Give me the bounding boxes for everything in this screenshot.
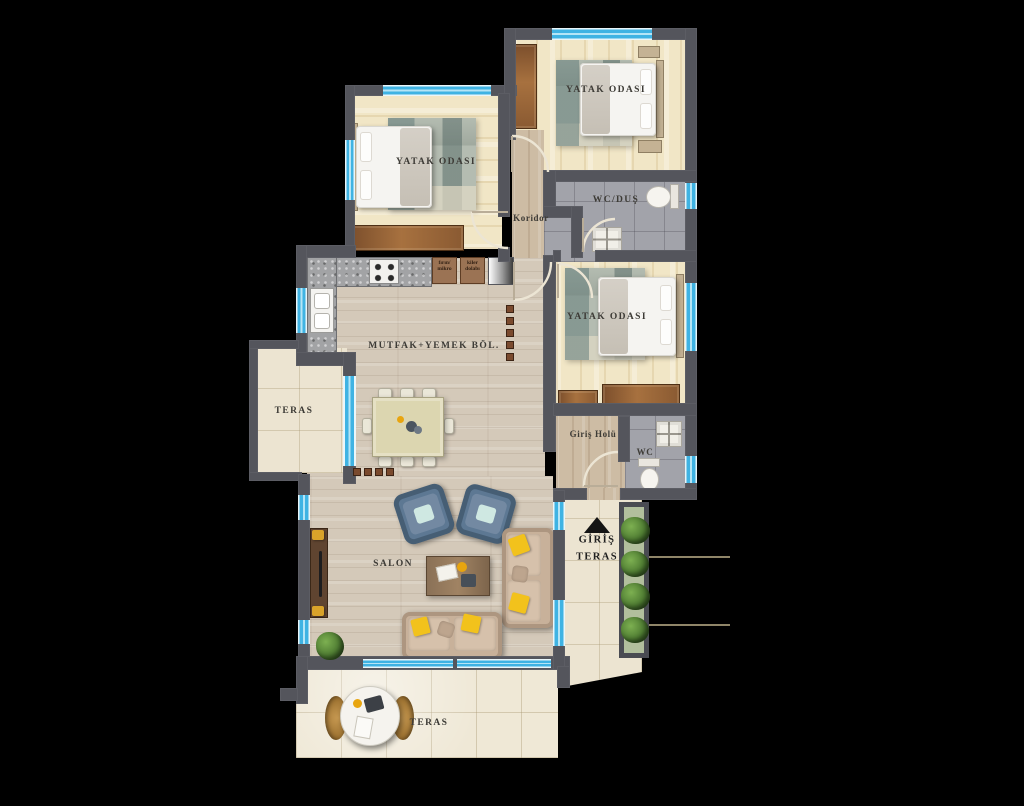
bed (580, 63, 656, 136)
bench (638, 46, 660, 58)
wall (557, 666, 570, 688)
window (298, 495, 310, 520)
dimension-line (645, 624, 730, 626)
tv-unit-accent (312, 606, 324, 616)
room-label-kitchen: MUTFAK+YEMEK BÖL. (368, 341, 499, 351)
sliding-glass-door (363, 659, 453, 668)
window (552, 28, 652, 40)
door-track-dot (506, 341, 514, 349)
room-label-bedroom-right: YATAK ODASI (567, 312, 647, 322)
window (553, 502, 565, 530)
door-track-dot (364, 468, 372, 476)
wall (618, 416, 630, 462)
wall (249, 472, 302, 481)
room-label-entry-hall: Giriş Holü (570, 429, 617, 439)
pantry-cabinet: kiler dolabı (460, 257, 485, 284)
window (345, 140, 355, 200)
door-track-dot (506, 305, 514, 313)
window (685, 183, 697, 209)
door-track-dot (353, 468, 361, 476)
bathroom-sink (592, 227, 622, 252)
wall (249, 340, 258, 481)
bench (638, 140, 662, 153)
terrace-table (340, 686, 400, 746)
room-label-wc: WC (637, 447, 654, 457)
dining-chair (422, 456, 436, 467)
plant (621, 517, 650, 544)
stove (369, 259, 399, 284)
wall (249, 340, 299, 349)
room-label-bathroom: WC/DUŞ (593, 195, 639, 205)
dining-chair (378, 456, 392, 467)
window (685, 283, 697, 351)
door-track-dot (375, 468, 383, 476)
door-track-dot (506, 317, 514, 325)
oven-microwave-cabinet: fırın/ mikro (432, 257, 457, 284)
wall (280, 688, 298, 701)
window (296, 288, 307, 333)
wall (553, 250, 561, 262)
room-label-terrace-left: TERAS (275, 406, 314, 416)
window (298, 620, 310, 644)
room-label-living-room: SALON (373, 559, 413, 569)
plant (621, 551, 649, 577)
door-track-dot (506, 329, 514, 337)
dimension-line (645, 556, 730, 558)
oven-microwave-label: mikro (433, 267, 456, 273)
room-label-entrance-terrace: TERAS (576, 552, 618, 563)
plant (621, 583, 650, 610)
room-label-terrace-bottom: TERAS (410, 718, 449, 728)
dining-chair (362, 418, 372, 434)
wall (553, 403, 697, 416)
dining-chair (400, 456, 414, 467)
label-entrance: GİRİŞ (579, 535, 616, 546)
sliding-glass-door (457, 659, 551, 668)
corridor-floor (512, 130, 544, 262)
window (383, 85, 491, 96)
wardrobe (350, 225, 464, 251)
toilet-tank (670, 184, 679, 209)
dining-table (372, 397, 444, 457)
sliding-glass-door (343, 376, 356, 466)
door-track-dot (506, 353, 514, 361)
pantry-label: dolabı (461, 267, 484, 273)
coffee-table (426, 556, 490, 596)
plant (316, 632, 344, 660)
dining-chair (444, 418, 454, 434)
floor-plan: fırın/ mikro kiler dolabı (0, 0, 1024, 806)
wc-sink (656, 421, 682, 447)
wall (595, 250, 697, 262)
wall (571, 206, 583, 258)
window (553, 600, 565, 646)
wall (543, 255, 556, 452)
sofa-pillow (511, 565, 529, 583)
room-label-corridor: Koridor (513, 213, 549, 223)
room-label-bedroom-top-right: YATAK ODASI (566, 85, 646, 95)
wall (543, 170, 697, 182)
toilet (646, 186, 671, 208)
wall (498, 93, 510, 217)
wall (620, 488, 697, 500)
toilet-tank (638, 458, 660, 467)
kitchen-sink (310, 288, 334, 333)
bed-headboard (656, 60, 664, 138)
bed (356, 126, 432, 208)
window (685, 456, 697, 483)
plant (621, 617, 649, 643)
door-track-dot (386, 468, 394, 476)
tv-unit (310, 528, 328, 618)
room-label-bedroom-top-left: YATAK ODASI (396, 157, 476, 167)
tv-unit-accent (312, 530, 324, 540)
wall (498, 247, 510, 262)
bed-headboard (676, 274, 684, 358)
sofa-pillow (460, 613, 481, 633)
entrance-arrow-icon (584, 517, 610, 533)
